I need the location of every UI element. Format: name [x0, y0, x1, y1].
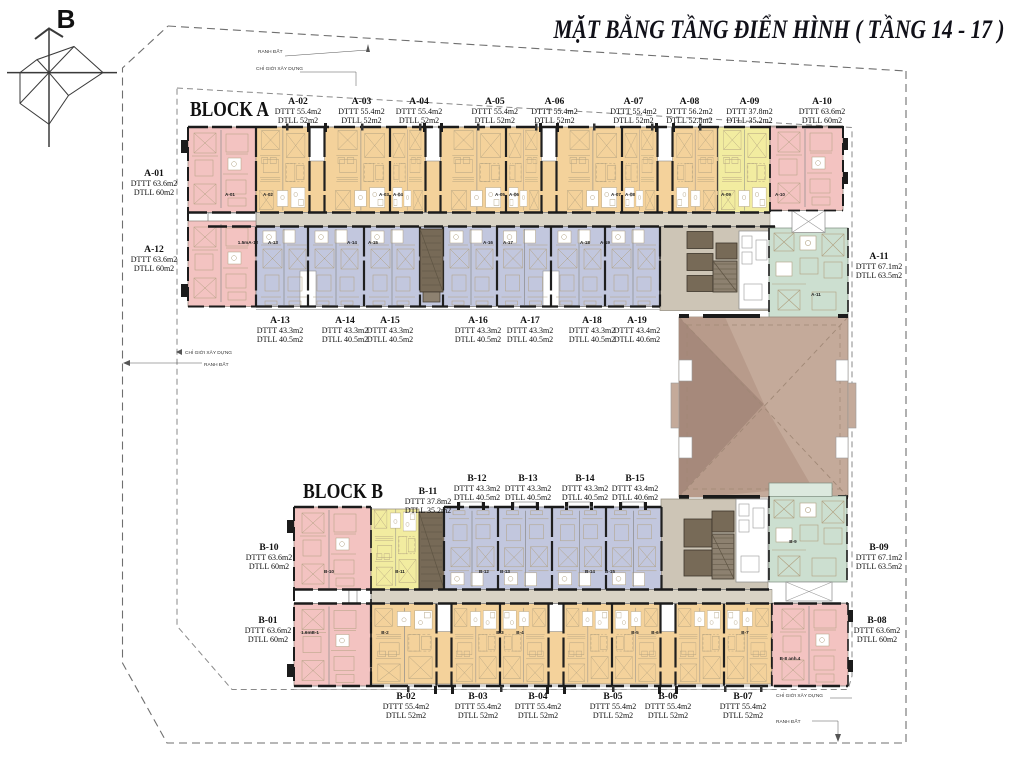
- svg-text:DTLL 52m2: DTLL 52m2: [613, 116, 653, 125]
- svg-text:DTLL 40.5m2: DTLL 40.5m2: [322, 335, 368, 344]
- svg-text:DTLL 40.5m2: DTLL 40.5m2: [367, 335, 413, 344]
- svg-text:DTLL 40.5m2: DTLL 40.5m2: [455, 335, 501, 344]
- svg-text:DTLL 52m2: DTLL 52m2: [341, 116, 381, 125]
- svg-text:B-9: B-9: [789, 539, 797, 544]
- svg-text:DTTT 63.6m2: DTTT 63.6m2: [799, 107, 846, 116]
- svg-text:B-13: B-13: [518, 473, 537, 484]
- svg-text:DTLL 40.5m2: DTLL 40.5m2: [562, 493, 608, 502]
- svg-text:DTTT 55.4m2: DTTT 55.4m2: [455, 702, 502, 711]
- svg-text:DTLL 40.6m2: DTLL 40.6m2: [614, 335, 660, 344]
- svg-text:A-03: A-03: [379, 192, 389, 197]
- svg-text:DTTT 43.3m2: DTTT 43.3m2: [322, 326, 369, 335]
- svg-text:DTTT 63.6m2: DTTT 63.6m2: [246, 553, 293, 562]
- svg-text:MẶT BẰNG TẦNG ĐIỂN HÌNH ( TẦNG: MẶT BẰNG TẦNG ĐIỂN HÌNH ( TẦNG 14 - 17 ): [553, 15, 1005, 44]
- svg-text:A-07: A-07: [611, 192, 621, 197]
- svg-text:DTTT 43.4m2: DTTT 43.4m2: [614, 326, 661, 335]
- svg-text:DTLL 52m2: DTLL 52m2: [458, 711, 498, 720]
- svg-text:DTLL 40.5m2: DTLL 40.5m2: [569, 335, 615, 344]
- svg-text:A-17: A-17: [520, 315, 540, 326]
- svg-text:A-16: A-16: [483, 240, 493, 245]
- svg-text:B-15: B-15: [625, 473, 644, 484]
- svg-text:DTTT 55.4m2: DTTT 55.4m2: [645, 702, 692, 711]
- svg-text:DTLL 60m2: DTLL 60m2: [134, 188, 174, 197]
- svg-text:B-14: B-14: [585, 569, 595, 574]
- svg-text:DTTT 37.8m2: DTTT 37.8m2: [405, 497, 452, 506]
- svg-text:A-19: A-19: [627, 315, 647, 326]
- svg-text:DTLL 52m2: DTLL 52m2: [475, 116, 515, 125]
- svg-text:DTLL 40.5m2: DTLL 40.5m2: [257, 335, 303, 344]
- svg-text:A-13: A-13: [270, 315, 290, 326]
- svg-text:B-2: B-2: [381, 630, 389, 635]
- svg-text:B-6: B-6: [651, 630, 659, 635]
- svg-text:B-05: B-05: [603, 691, 622, 702]
- svg-text:DTLL 52m2: DTLL 52m2: [399, 116, 439, 125]
- svg-text:DTTT 67.1m2: DTTT 67.1m2: [856, 553, 903, 562]
- svg-text:A-08: A-08: [680, 96, 700, 107]
- svg-text:B-3: B-3: [496, 630, 504, 635]
- svg-text:DTTT 55.4m2: DTTT 55.4m2: [515, 702, 562, 711]
- svg-text:B-13: B-13: [500, 569, 510, 574]
- svg-text:B-12: B-12: [467, 473, 486, 484]
- svg-text:A-16: A-16: [468, 315, 488, 326]
- svg-text:DTTT 55.4m2: DTTT 55.4m2: [275, 107, 322, 116]
- svg-text:B-14: B-14: [575, 473, 594, 484]
- svg-text:DTLL 60m2: DTLL 60m2: [802, 116, 842, 125]
- svg-text:A-05: A-05: [495, 192, 505, 197]
- svg-text:A-04: A-04: [393, 192, 403, 197]
- svg-text:DTTT 43.3m2: DTTT 43.3m2: [562, 484, 609, 493]
- svg-text:A-19: A-19: [600, 240, 610, 245]
- svg-text:DTTT 63.6m2: DTTT 63.6m2: [131, 255, 178, 264]
- svg-text:B-02: B-02: [396, 691, 415, 702]
- svg-text:CHỈ GIỚI XÂY DỰNG: CHỈ GIỚI XÂY DỰNG: [256, 65, 303, 72]
- svg-text:B-07: B-07: [733, 691, 752, 702]
- svg-text:A-14: A-14: [335, 315, 355, 326]
- svg-text:DTLL 52m2: DTLL 52m2: [534, 116, 574, 125]
- svg-text:DTTT 56.2m2: DTTT 56.2m2: [666, 107, 713, 116]
- svg-text:B-7: B-7: [741, 630, 749, 635]
- svg-text:DTLL 60m2: DTLL 60m2: [249, 562, 289, 571]
- svg-text:DTTT 63.6m2: DTTT 63.6m2: [854, 626, 901, 635]
- svg-text:B: B: [57, 4, 76, 34]
- svg-text:BLOCK A: BLOCK A: [190, 97, 270, 121]
- svg-text:A-01: A-01: [144, 168, 164, 179]
- svg-text:B-10: B-10: [324, 569, 334, 574]
- svg-text:A-11: A-11: [869, 251, 888, 262]
- svg-text:DTTT 67.1m2: DTTT 67.1m2: [856, 262, 903, 271]
- svg-text:B-12: B-12: [479, 569, 489, 574]
- svg-text:1.6mB-1: 1.6mB-1: [301, 630, 319, 635]
- svg-text:A-07: A-07: [624, 96, 644, 107]
- svg-text:1.5mA-12: 1.5mA-12: [238, 240, 259, 245]
- svg-text:RANH ĐẤT: RANH ĐẤT: [204, 361, 229, 368]
- svg-text:DTTT 43.3m2: DTTT 43.3m2: [454, 484, 501, 493]
- svg-text:DTTT 43.3m2: DTTT 43.3m2: [367, 326, 414, 335]
- svg-text:DTTT 55.4m2: DTTT 55.4m2: [590, 702, 637, 711]
- svg-text:DTTT 43.3m2: DTTT 43.3m2: [505, 484, 552, 493]
- svg-text:B-11: B-11: [419, 486, 438, 497]
- svg-text:CHỈ GIỚI XÂY DỰNG: CHỈ GIỚI XÂY DỰNG: [185, 349, 232, 356]
- svg-text:DTTT 43.3m2: DTTT 43.3m2: [569, 326, 616, 335]
- svg-text:DTTT 37.8m2: DTTT 37.8m2: [726, 107, 773, 116]
- svg-text:A-02: A-02: [263, 192, 273, 197]
- svg-text:DTTT 55.4m2: DTTT 55.4m2: [472, 107, 519, 116]
- svg-text:DTTT 55.4m2: DTTT 55.4m2: [383, 702, 430, 711]
- svg-text:DTLL 52.8m2: DTLL 52.8m2: [666, 116, 712, 125]
- svg-text:DTLL 40.5m2: DTLL 40.5m2: [507, 335, 553, 344]
- svg-text:DTLL 40.5m2: DTLL 40.5m2: [454, 493, 500, 502]
- svg-text:A-09: A-09: [740, 96, 760, 107]
- svg-text:A-11: A-11: [811, 292, 821, 297]
- svg-text:DTTT 43.3m2: DTTT 43.3m2: [257, 326, 304, 335]
- svg-text:B-01: B-01: [258, 615, 277, 626]
- svg-text:DTLL 40.6m2: DTLL 40.6m2: [612, 493, 658, 502]
- svg-text:B-15: B-15: [605, 569, 615, 574]
- svg-text:A-10: A-10: [812, 96, 832, 107]
- svg-text:DTLL 60m2: DTLL 60m2: [857, 635, 897, 644]
- svg-text:A-03: A-03: [352, 96, 372, 107]
- svg-text:DTLL 63.5m2: DTLL 63.5m2: [856, 271, 902, 280]
- svg-text:DTTT 43.3m2: DTTT 43.3m2: [507, 326, 554, 335]
- svg-text:A-12: A-12: [144, 244, 164, 255]
- svg-text:B-11: B-11: [395, 569, 405, 574]
- svg-text:B-8 anh.4: B-8 anh.4: [780, 656, 801, 661]
- svg-text:DTTT 55.4m2: DTTT 55.4m2: [531, 107, 578, 116]
- svg-text:DTLL 52m2: DTLL 52m2: [518, 711, 558, 720]
- svg-text:A-08: A-08: [625, 192, 635, 197]
- svg-text:A-13: A-13: [268, 240, 278, 245]
- svg-text:DTTT 43.4m2: DTTT 43.4m2: [612, 484, 659, 493]
- svg-text:RANH ĐẤT: RANH ĐẤT: [776, 718, 801, 725]
- svg-text:B-4: B-4: [516, 630, 524, 635]
- svg-text:DTLL 60m2: DTLL 60m2: [134, 264, 174, 273]
- svg-text:BLOCK B: BLOCK B: [303, 479, 383, 503]
- svg-text:B-03: B-03: [468, 691, 487, 702]
- svg-text:A-09: A-09: [721, 192, 731, 197]
- svg-text:DTLL 35.2m2: DTLL 35.2m2: [405, 506, 451, 515]
- svg-text:B-06: B-06: [658, 691, 677, 702]
- svg-text:DTLL 60m2: DTLL 60m2: [248, 635, 288, 644]
- svg-text:A-10: A-10: [775, 192, 785, 197]
- svg-text:B-09: B-09: [869, 542, 888, 553]
- svg-text:A-02: A-02: [288, 96, 308, 107]
- svg-text:DTLL 52m2: DTLL 52m2: [648, 711, 688, 720]
- svg-text:RANH ĐẤT: RANH ĐẤT: [258, 48, 283, 55]
- svg-text:DTTT 55.4m2: DTTT 55.4m2: [720, 702, 767, 711]
- svg-text:DTTT 63.6m2: DTTT 63.6m2: [245, 626, 292, 635]
- svg-text:DTTT 55.4m2: DTTT 55.4m2: [338, 107, 385, 116]
- svg-text:DTLL 52m2: DTLL 52m2: [278, 116, 318, 125]
- svg-text:DTLL 52m2: DTLL 52m2: [593, 711, 633, 720]
- svg-text:DTTT 55.4m2: DTTT 55.4m2: [396, 107, 443, 116]
- svg-text:A-18: A-18: [582, 315, 602, 326]
- svg-text:A-06: A-06: [545, 96, 565, 107]
- svg-text:DTTT 63.6m2: DTTT 63.6m2: [131, 179, 178, 188]
- svg-text:A-18: A-18: [580, 240, 590, 245]
- svg-text:DTTT 43.3m2: DTTT 43.3m2: [455, 326, 502, 335]
- svg-text:DTLL 35.2m2: DTLL 35.2m2: [726, 116, 772, 125]
- svg-text:A-15: A-15: [368, 240, 378, 245]
- svg-text:A-14: A-14: [347, 240, 357, 245]
- svg-text:DTTT 55.4m2: DTTT 55.4m2: [610, 107, 657, 116]
- svg-text:A-05: A-05: [485, 96, 505, 107]
- svg-text:A-04: A-04: [409, 96, 429, 107]
- svg-text:B-5: B-5: [631, 630, 639, 635]
- svg-text:B-10: B-10: [259, 542, 278, 553]
- svg-text:B-08: B-08: [867, 615, 886, 626]
- svg-text:A-06: A-06: [509, 192, 519, 197]
- svg-text:DTLL 52m2: DTLL 52m2: [386, 711, 426, 720]
- svg-text:A-01: A-01: [225, 192, 235, 197]
- svg-text:A-15: A-15: [380, 315, 400, 326]
- svg-text:DTLL 40.5m2: DTLL 40.5m2: [505, 493, 551, 502]
- svg-text:DTLL 63.5m2: DTLL 63.5m2: [856, 562, 902, 571]
- svg-text:B-04: B-04: [528, 691, 547, 702]
- svg-text:DTLL 52m2: DTLL 52m2: [723, 711, 763, 720]
- svg-text:CHỈ GIỚI XÂY DỰNG: CHỈ GIỚI XÂY DỰNG: [776, 692, 823, 699]
- svg-text:A-17: A-17: [503, 240, 513, 245]
